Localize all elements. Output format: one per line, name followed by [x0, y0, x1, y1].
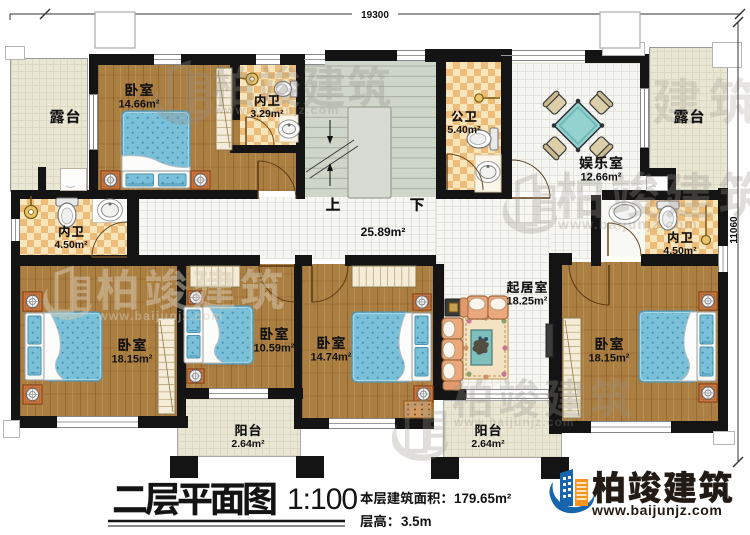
- svg-text:10.59m²: 10.59m²: [254, 343, 295, 355]
- svg-text:www.baijunjz.com: www.baijunjz.com: [591, 502, 722, 518]
- svg-text:www.baijunjz.com: www.baijunjz.com: [97, 309, 223, 323]
- svg-text:18.25m²: 18.25m²: [507, 296, 548, 308]
- svg-text:14.74m²: 14.74m²: [311, 352, 352, 364]
- svg-text:4.50m²: 4.50m²: [663, 245, 697, 257]
- svg-text:3.5m: 3.5m: [401, 514, 432, 529]
- svg-text:www.baijunjz.com: www.baijunjz.com: [557, 216, 698, 232]
- svg-text:14.66m²: 14.66m²: [119, 99, 160, 111]
- svg-text:3.29m²: 3.29m²: [250, 108, 284, 120]
- svg-text:2.64m²: 2.64m²: [471, 438, 505, 450]
- svg-text:5.40m²: 5.40m²: [447, 124, 481, 136]
- svg-text:1:100: 1:100: [287, 483, 357, 516]
- svg-text:11060: 11060: [729, 216, 740, 244]
- svg-text:18.15m²: 18.15m²: [589, 353, 630, 365]
- svg-text:12.66m²: 12.66m²: [581, 172, 622, 184]
- svg-text:19300: 19300: [361, 10, 389, 21]
- svg-text:25.89m²: 25.89m²: [361, 225, 406, 239]
- svg-text:18.15m²: 18.15m²: [112, 354, 153, 366]
- svg-text:179.65m²: 179.65m²: [454, 491, 512, 506]
- svg-text:4.50m²: 4.50m²: [54, 239, 88, 251]
- svg-text:2.64m²: 2.64m²: [231, 438, 265, 450]
- svg-text:www.baijunjz.com: www.baijunjz.com: [453, 416, 575, 429]
